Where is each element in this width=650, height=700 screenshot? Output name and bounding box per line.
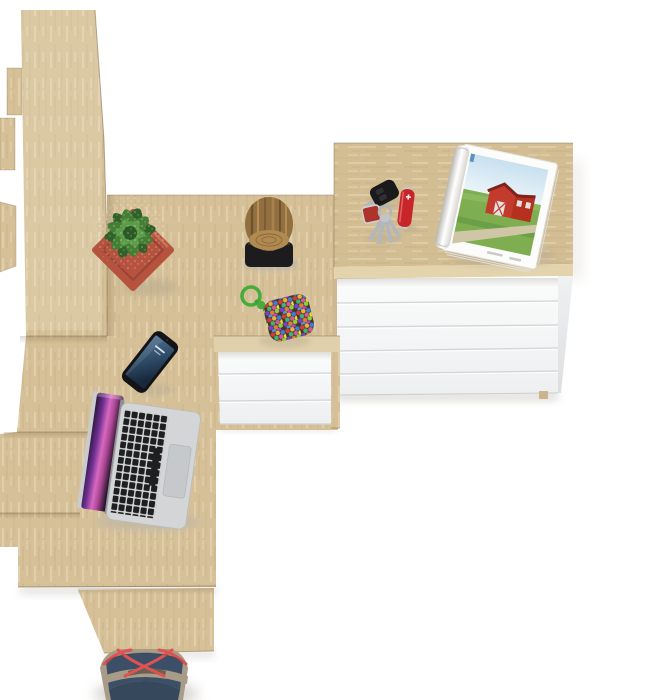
shelf-step-ao-3	[0, 513, 80, 519]
chest-top-ao	[337, 278, 558, 287]
shelf-tab	[0, 118, 15, 170]
chest-foot-right	[539, 391, 548, 399]
scene-image	[0, 0, 650, 700]
desk-side-panel	[78, 588, 214, 653]
shelf-step-ao-1	[20, 336, 107, 344]
pedestal-drawers	[218, 352, 333, 424]
desk-drawer-unit	[214, 336, 340, 428]
pedestal-ao	[218, 352, 333, 360]
plant-leaves	[94, 197, 166, 269]
product-image	[0, 0, 650, 700]
desk-side-ao	[78, 588, 214, 595]
shelf-tab	[7, 68, 22, 115]
chest-drawer-stack	[337, 276, 558, 395]
chest-side-panel	[558, 276, 573, 393]
log-end-grain	[249, 230, 289, 250]
shelf-main-highlight	[22, 10, 102, 330]
laptop	[76, 391, 202, 531]
shelf-tab	[0, 202, 16, 272]
tote-bag	[100, 649, 188, 700]
pedestal-oak-side	[331, 352, 340, 428]
